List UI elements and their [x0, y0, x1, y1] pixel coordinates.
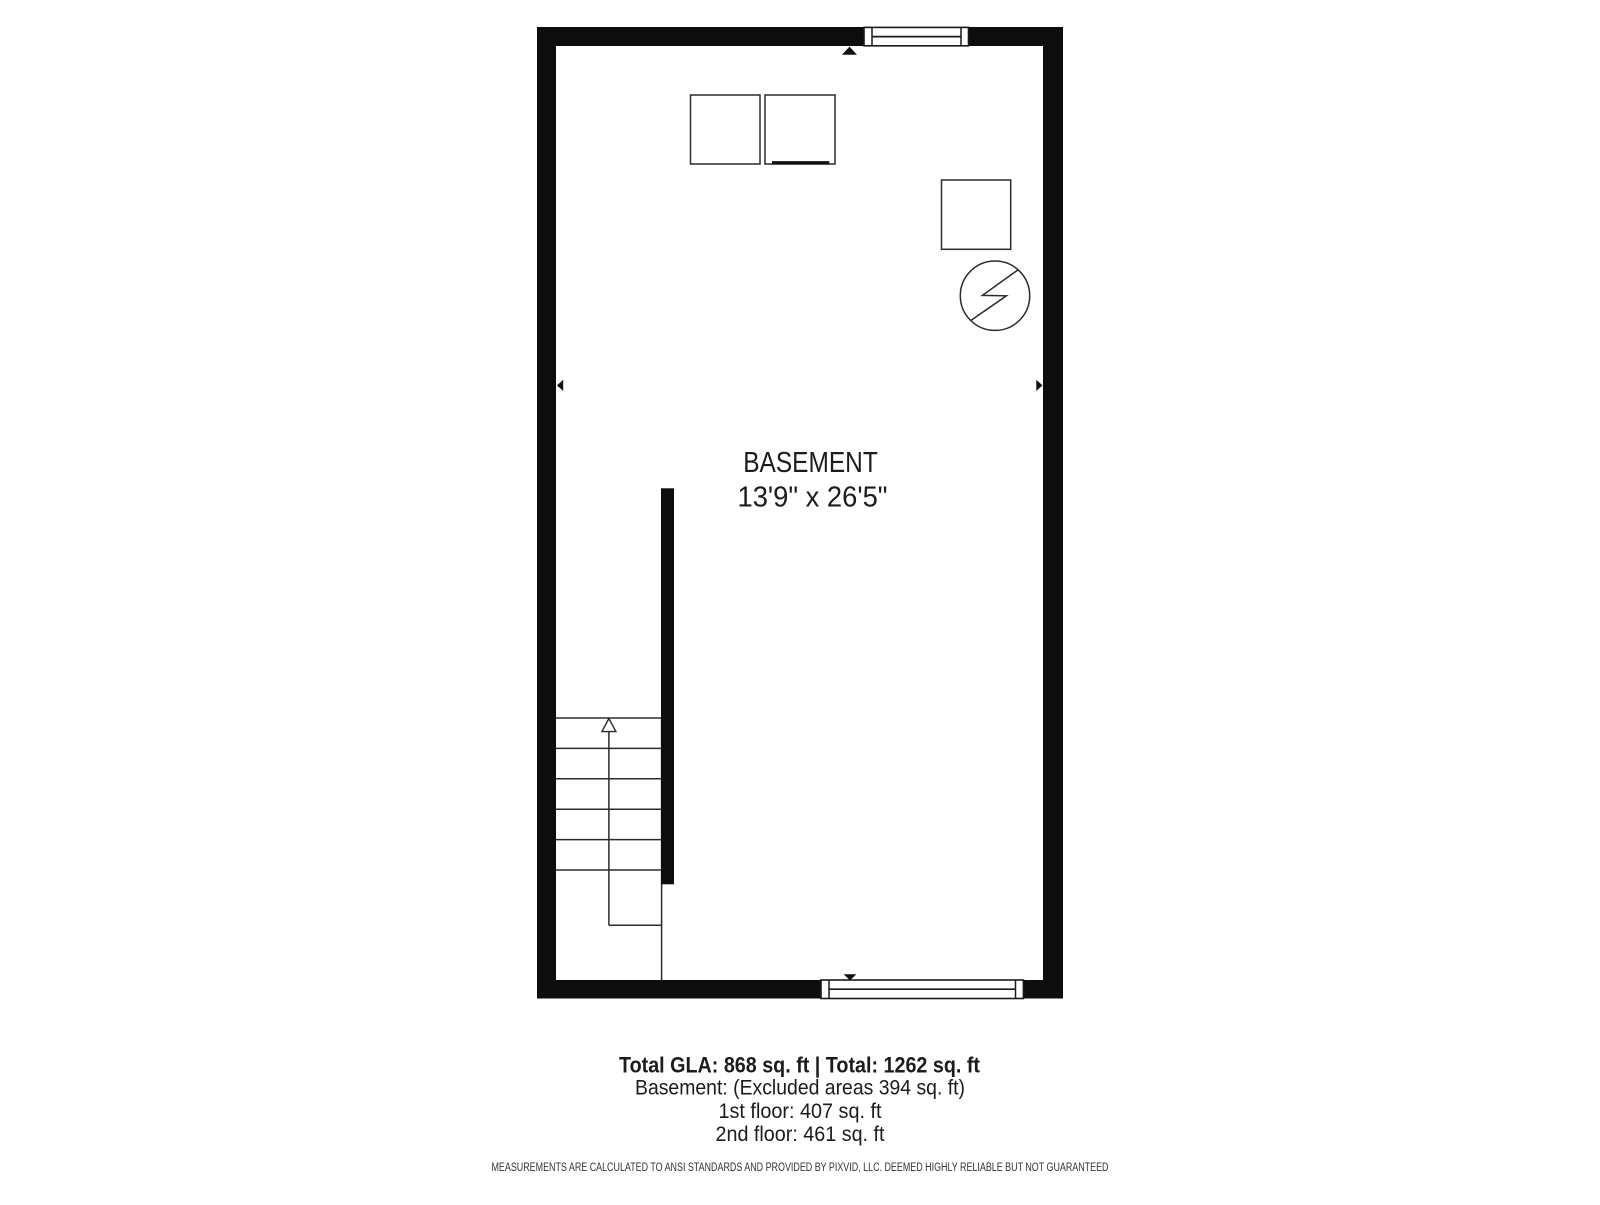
svg-text:1st floor: 407 sq. ft: 1st floor: 407 sq. ft	[719, 1099, 882, 1123]
svg-text:13'9" x 26'5": 13'9" x 26'5"	[738, 482, 888, 514]
svg-text:MEASUREMENTS ARE CALCULATED TO: MEASUREMENTS ARE CALCULATED TO ANSI STAN…	[492, 1160, 1109, 1174]
svg-text:Total GLA: 868 sq. ft | Total:: Total GLA: 868 sq. ft | Total: 1262 sq. …	[619, 1053, 981, 1078]
svg-text:2nd floor: 461 sq. ft: 2nd floor: 461 sq. ft	[716, 1122, 885, 1146]
svg-text:Basement: (Excluded areas 394: Basement: (Excluded areas 394 sq. ft)	[635, 1076, 965, 1100]
svg-text:BASEMENT: BASEMENT	[743, 447, 878, 479]
